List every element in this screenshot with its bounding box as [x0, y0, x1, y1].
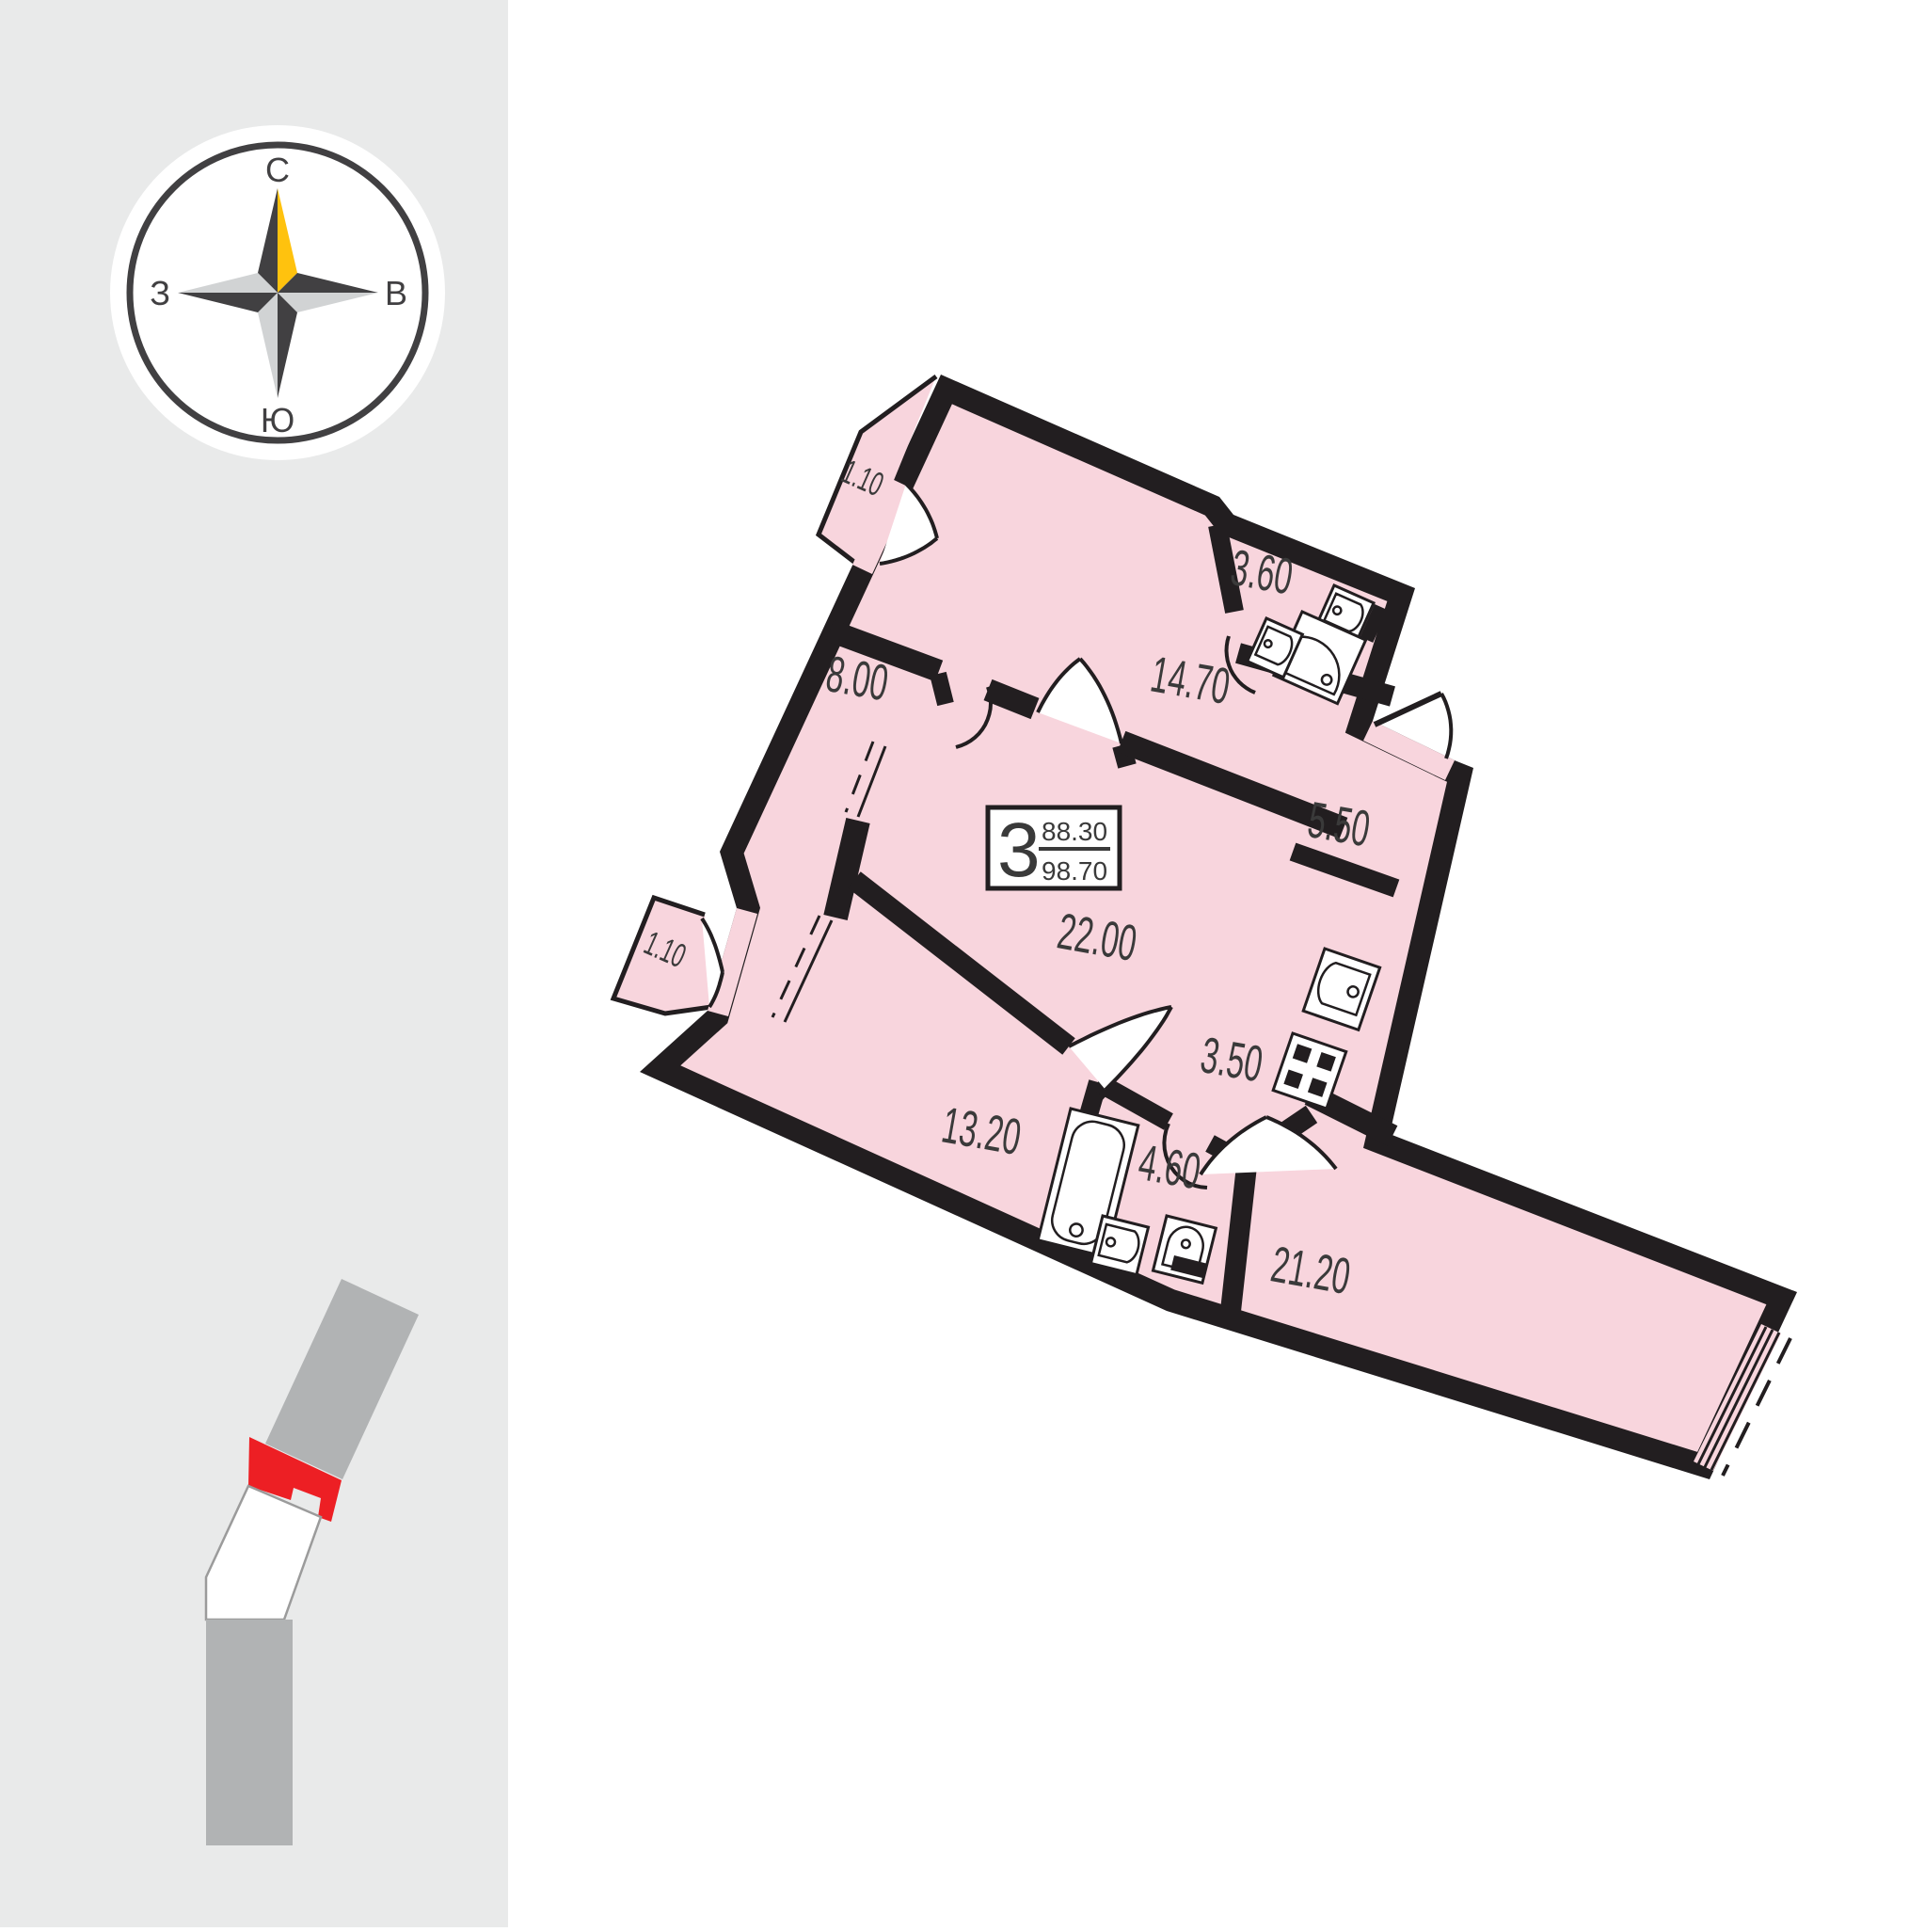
- svg-text:Ю: Ю: [261, 401, 294, 439]
- svg-text:4.60: 4.60: [1135, 1133, 1205, 1201]
- svg-text:5.50: 5.50: [1304, 790, 1375, 858]
- svg-text:З: З: [150, 274, 170, 312]
- svg-text:В: В: [385, 274, 407, 312]
- svg-text:3: 3: [997, 807, 1041, 893]
- svg-text:8.00: 8.00: [822, 645, 893, 712]
- svg-text:3.50: 3.50: [1197, 1026, 1267, 1094]
- svg-text:88.30: 88.30: [1042, 817, 1107, 846]
- svg-text:С: С: [265, 151, 290, 189]
- svg-text:98.70: 98.70: [1042, 856, 1107, 886]
- svg-text:3.60: 3.60: [1227, 538, 1297, 606]
